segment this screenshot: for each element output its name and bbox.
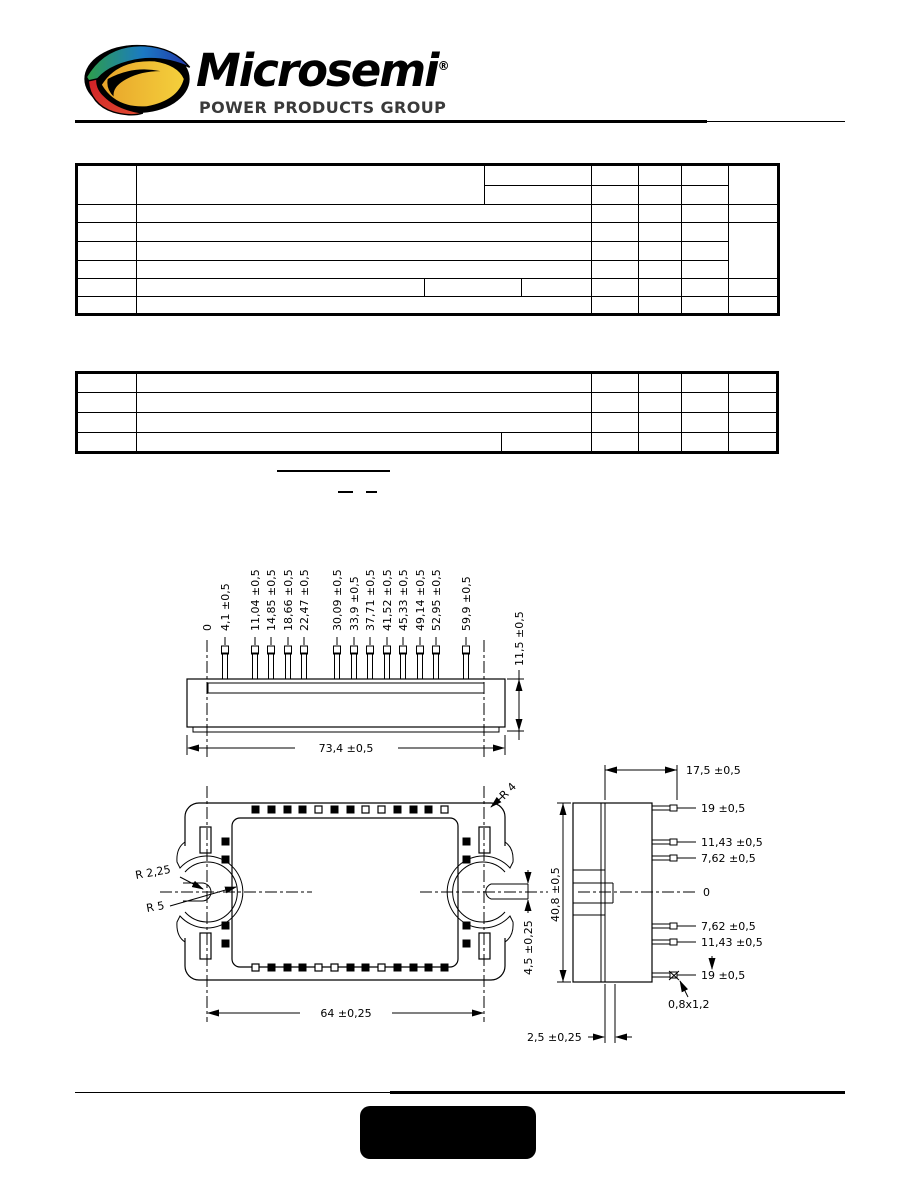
baseplate-dimension: 2,5 ±0,25 xyxy=(527,984,632,1044)
header-rule-thin xyxy=(707,121,845,122)
brand-name: Microsemi® xyxy=(196,44,450,97)
spec-table-1 xyxy=(75,163,780,316)
pin-cross-section-label: 0,8x1,2 xyxy=(668,998,710,1011)
front-lid xyxy=(208,683,484,693)
pin-label: 0 xyxy=(201,624,214,631)
pin-label: 52,95 ±0,5 xyxy=(430,569,443,631)
blank-underline-long xyxy=(277,470,390,472)
footer-rule-thin xyxy=(75,1092,390,1093)
side-pin-label: 19 ±0,5 xyxy=(701,969,745,982)
pin-cross-section-callout: 0,8x1,2 xyxy=(668,956,712,1011)
side-pin-label: 19 ±0,5 xyxy=(701,802,745,815)
baseplate-label: 2,5 ±0,25 xyxy=(527,1031,582,1044)
pin-label: 49,14 ±0,5 xyxy=(414,569,427,631)
pin-label: 33,9 ±0,5 xyxy=(348,576,361,631)
side-top-width-label: 17,5 ±0,5 xyxy=(686,764,741,777)
side-height-label: 40,8 ±0,5 xyxy=(549,867,562,922)
notch-outer-radius-label: R 5 xyxy=(145,899,165,915)
side-pin-label: 7,62 ±0,5 xyxy=(701,852,756,865)
pin-label: 4,1 ±0,5 xyxy=(219,583,232,631)
footer-black-box xyxy=(360,1106,536,1159)
front-pin-labels: 0 4,1 ±0,5 11,04 ±0,5 14,85 ±0,5 18,66 ±… xyxy=(201,569,473,631)
side-pin-label: 11,43 ±0,5 xyxy=(701,836,763,849)
microsemi-logo: Microsemi® POWER PRODUCTS GROUP xyxy=(78,36,438,121)
hole-pitch-label: 64 ±0,25 xyxy=(320,1007,371,1020)
front-view: 0 4,1 ±0,5 11,04 ±0,5 14,85 ±0,5 18,66 ±… xyxy=(187,569,526,760)
side-top-width-dimension: 17,5 ±0,5 xyxy=(605,764,741,800)
spec-table-2 xyxy=(75,371,779,454)
pin-label: 59,9 ±0,5 xyxy=(460,576,473,631)
front-height-dimension: 11,5 ±0,5 xyxy=(507,611,526,740)
side-pin-label: 7,62 ±0,5 xyxy=(701,920,756,933)
side-pin-leaders: 19 ±0,5 11,43 ±0,5 7,62 ±0,5 0 7,62 ±0,5… xyxy=(578,802,763,982)
tab-height-label: 4,5 ±0,25 xyxy=(522,920,535,975)
microsemi-swirl-icon xyxy=(78,38,196,116)
front-pins xyxy=(222,646,470,679)
top-pad-row xyxy=(252,806,448,813)
package-outline-drawing: 0 4,1 ±0,5 11,04 ±0,5 14,85 ±0,5 18,66 ±… xyxy=(0,530,918,1075)
blank-underline-short-1 xyxy=(338,491,353,493)
corner-slot xyxy=(200,933,211,959)
bottom-view: R 4 R 2,25 R 5 4,5 ±0,25 64 ±0,25 xyxy=(134,780,548,1022)
front-pin-leaders xyxy=(225,637,466,645)
hole-pitch-dimension: 64 ±0,25 xyxy=(208,1007,483,1020)
pin-label: 45,33 ±0,5 xyxy=(397,569,410,631)
pin-label: 37,71 ±0,5 xyxy=(364,569,377,631)
front-width-label: 73,4 ±0,5 xyxy=(319,742,374,755)
datasheet-page: Microsemi® POWER PRODUCTS GROUP xyxy=(0,0,918,1188)
pin-label: 30,09 ±0,5 xyxy=(331,569,344,631)
side-pin-label: 11,43 ±0,5 xyxy=(701,936,763,949)
pin-label: 22,47 ±0,5 xyxy=(298,569,311,631)
side-pin-label: 0 xyxy=(703,886,710,899)
header-rule-thick xyxy=(75,120,707,123)
registered-mark: ® xyxy=(438,59,450,73)
corner-slot xyxy=(200,827,211,853)
pin-label: 11,04 ±0,5 xyxy=(249,569,262,631)
notch-inner-radius-label: R 2,25 xyxy=(134,863,171,882)
front-baseplate xyxy=(193,727,499,732)
pin-label: 14,85 ±0,5 xyxy=(265,569,278,631)
brand-tagline: POWER PRODUCTS GROUP xyxy=(199,98,446,117)
footer-rule-thick xyxy=(390,1091,845,1094)
blank-underline-short-2 xyxy=(366,491,377,493)
bottom-pad-rows xyxy=(200,806,490,971)
front-height-label: 11,5 ±0,5 xyxy=(513,611,526,666)
pin-label: 18,66 ±0,5 xyxy=(282,569,295,631)
front-width-dimension: 73,4 ±0,5 xyxy=(187,735,505,755)
front-body-outline xyxy=(187,679,505,727)
side-height-dimension: 40,8 ±0,5 xyxy=(549,803,571,982)
pin-label: 41,52 ±0,5 xyxy=(381,569,394,631)
side-view: 17,5 ±0,5 19 ±0,5 11,43 ±0,5 7,62 ±0,5 0… xyxy=(527,764,763,1044)
